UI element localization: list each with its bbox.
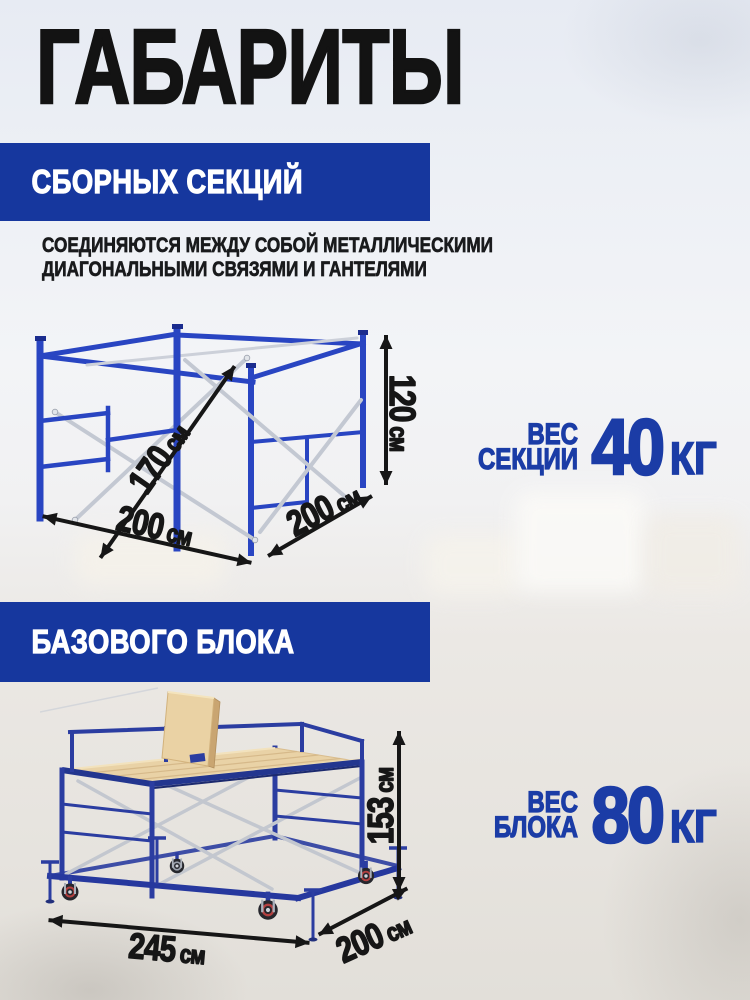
dimension-label-diagonal: 170см (120, 414, 197, 500)
dimension-label-side-right: 200см (280, 473, 367, 544)
banner-base-block: БАЗОВОГО БЛОКА (0, 602, 430, 682)
banner-base-block-label: БАЗОВОГО БЛОКА (0, 623, 294, 661)
section-weight-unit: КГ (670, 436, 717, 481)
base-diagonal-braces (66, 766, 360, 889)
background-shadow (560, 0, 750, 130)
dimension-value: 153 (360, 797, 400, 844)
banner-assembled-sections: СБОРНЫХ СЕКЦИЙ (0, 143, 430, 221)
dimension-value: 245 (127, 925, 178, 969)
weight-label-bottom: БЛОКА (474, 815, 578, 840)
sections-description-line-2: ДИАГОНАЛЬНЫМИ СВЯЗЯМИ И ГАНТЕЛЯМИ (42, 258, 493, 282)
banner-assembled-sections-label: СБОРНЫХ СЕКЦИЙ (0, 163, 303, 201)
dimension-value: 200 (113, 497, 167, 547)
section-weight-label: ВЕС СЕКЦИИ (474, 422, 578, 472)
dimension-label-height: 120см (382, 375, 422, 452)
dimension-unit: см (385, 426, 413, 451)
caster-wheels (62, 852, 375, 919)
dimension-value: 120 (382, 375, 422, 422)
base-block-weight: ВЕС БЛОКА 80 КГ (448, 782, 723, 848)
plywood-board (162, 692, 220, 768)
dimension-label-side-left: 200см (113, 497, 197, 553)
background-blur-blob (515, 492, 645, 592)
sections-diagram: 170см 200см 200см 120см (25, 320, 450, 585)
dimension-unit: см (164, 518, 195, 551)
dimension-unit: см (179, 939, 206, 969)
infographic-canvas: ГАБАРИТЫ СБОРНЫХ СЕКЦИЙ СОЕДИНЯЮТСЯ МЕЖД… (0, 0, 750, 1000)
dimension-label-depth: 200см (330, 902, 416, 970)
front-bottom-beams (50, 868, 398, 898)
base-block-weight-label: ВЕС БЛОКА (474, 790, 578, 840)
background-cable (40, 688, 158, 712)
base-block-weight-value: 80 (591, 784, 662, 846)
section-weight-value: 40 (591, 416, 662, 478)
sections-description: СОЕДИНЯЮТСЯ МЕЖДУ СОБОЙ МЕТАЛЛИЧЕСКИМИ Д… (42, 234, 606, 281)
dimension-unit: см (381, 911, 415, 947)
dimension-unit: см (370, 768, 398, 793)
dimension-label-height: 153см (360, 768, 400, 845)
screw-foot (41, 862, 59, 904)
background-blur-blob (645, 515, 740, 595)
page-title: ГАБАРИТЫ (36, 14, 464, 120)
weight-label-bottom: СЕКЦИИ (474, 447, 578, 472)
base-block-illustration: 153см 245см 200см (40, 686, 450, 978)
section-weight: ВЕС СЕКЦИИ 40 КГ (448, 414, 723, 480)
base-block-weight-unit: КГ (670, 804, 717, 849)
sections-description-line-1: СОЕДИНЯЮТСЯ МЕЖДУ СОБОЙ МЕТАЛЛИЧЕСКИМИ (42, 234, 493, 258)
